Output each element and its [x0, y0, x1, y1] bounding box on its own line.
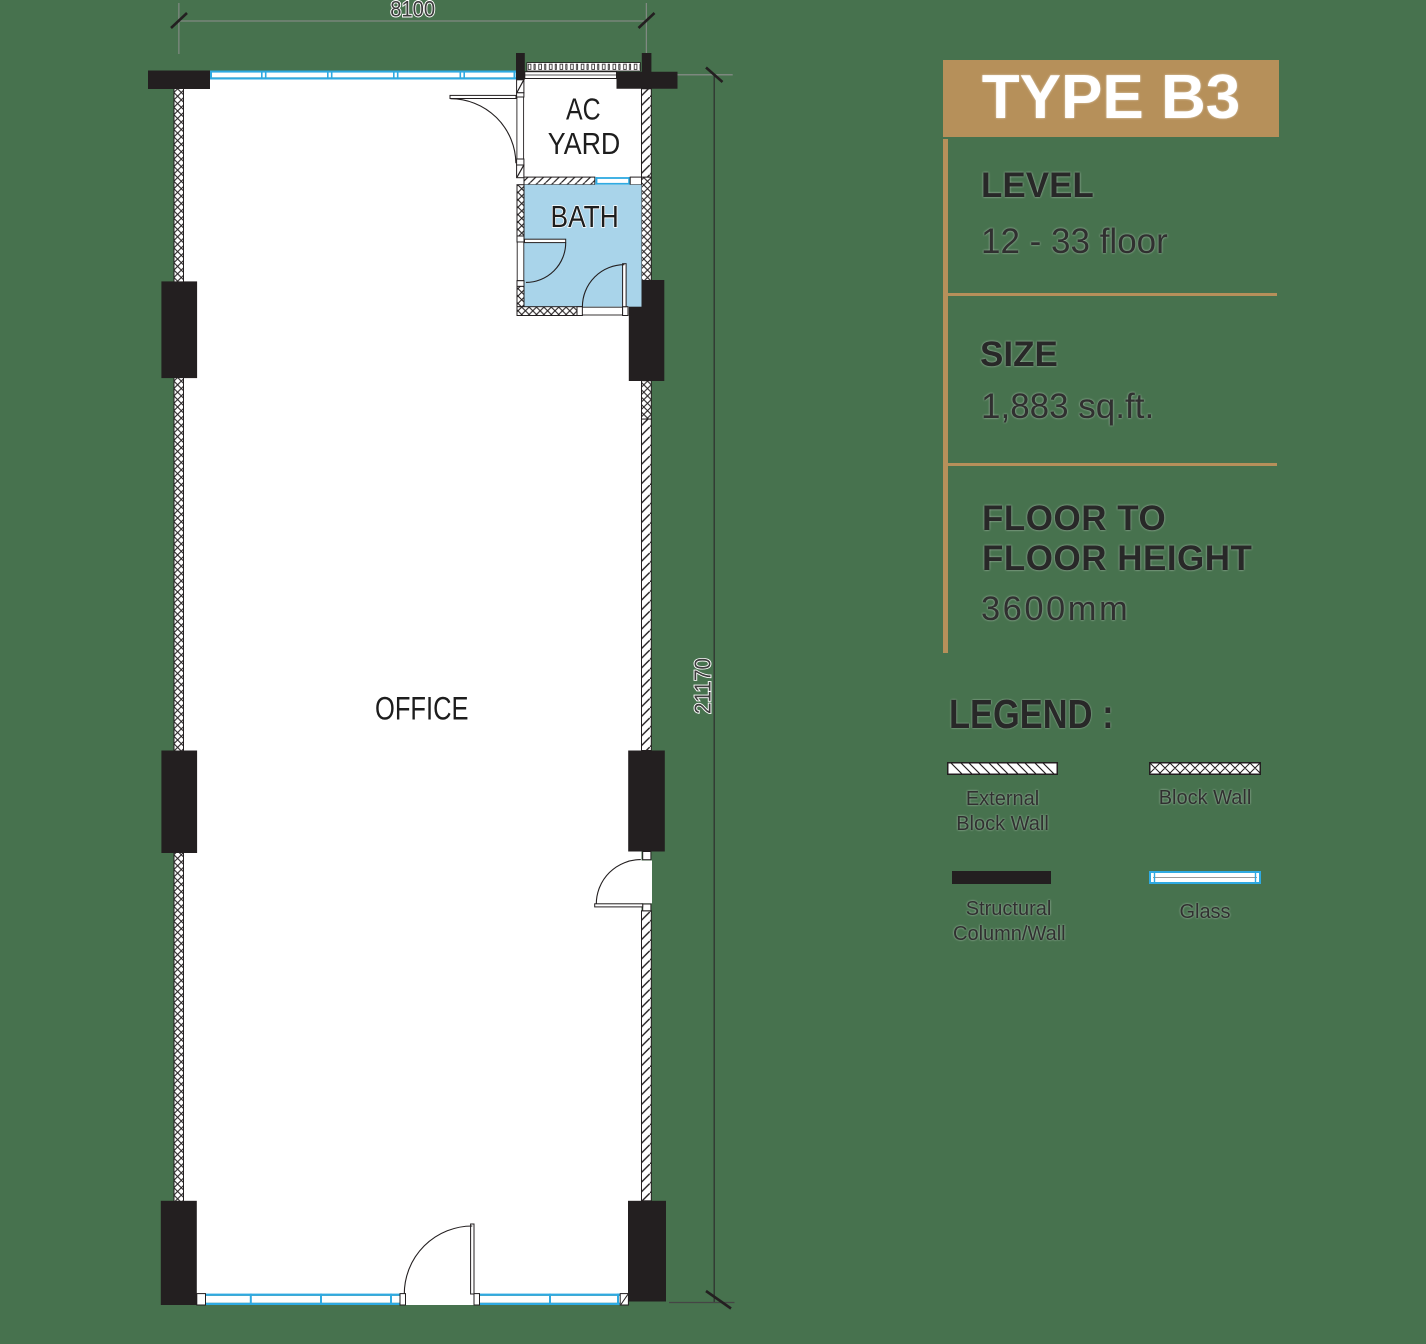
svg-text:8100: 8100 — [390, 0, 435, 21]
svg-text:YARD: YARD — [548, 127, 621, 161]
svg-text:OFFICE: OFFICE — [375, 690, 469, 726]
svg-text:BATH: BATH — [551, 200, 619, 234]
svg-text:AC: AC — [566, 93, 601, 127]
svg-text:21170: 21170 — [690, 658, 716, 714]
